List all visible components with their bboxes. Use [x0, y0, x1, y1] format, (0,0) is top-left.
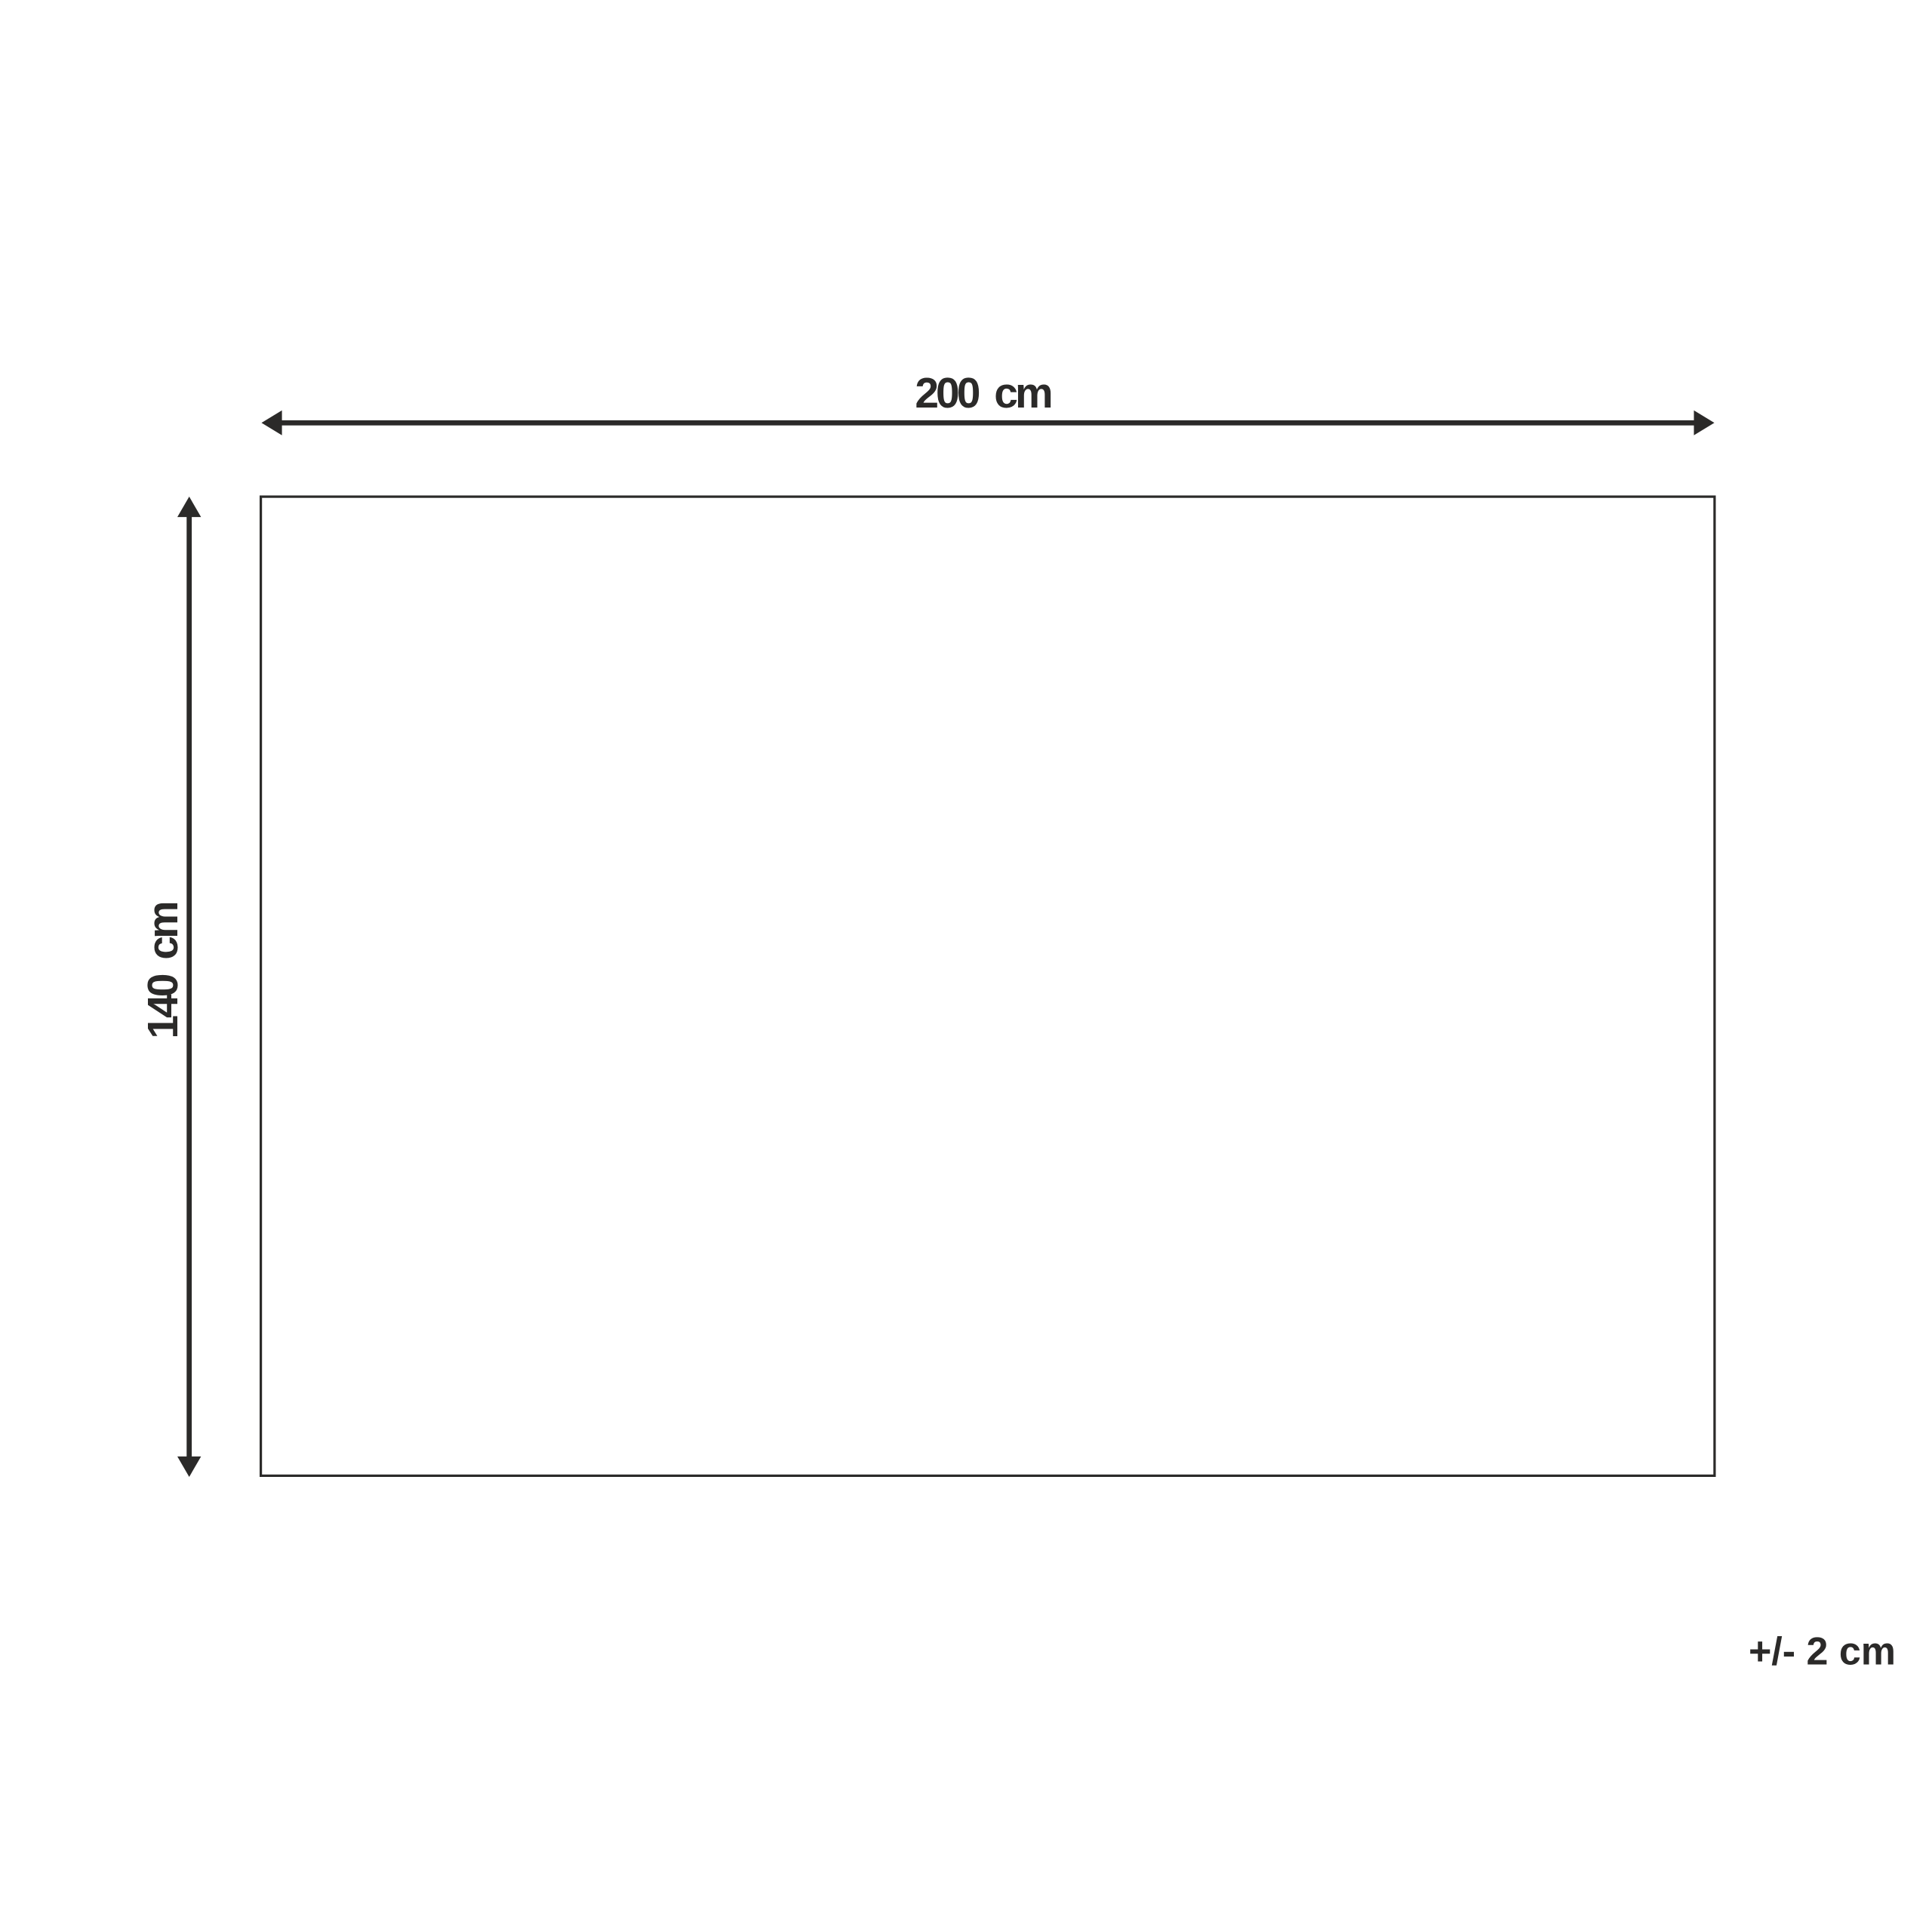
svg-text:+/- 2 cm: +/- 2 cm — [1749, 1630, 1896, 1674]
svg-text:140 cm: 140 cm — [139, 903, 187, 1039]
svg-text:200 cm: 200 cm — [915, 369, 1051, 417]
